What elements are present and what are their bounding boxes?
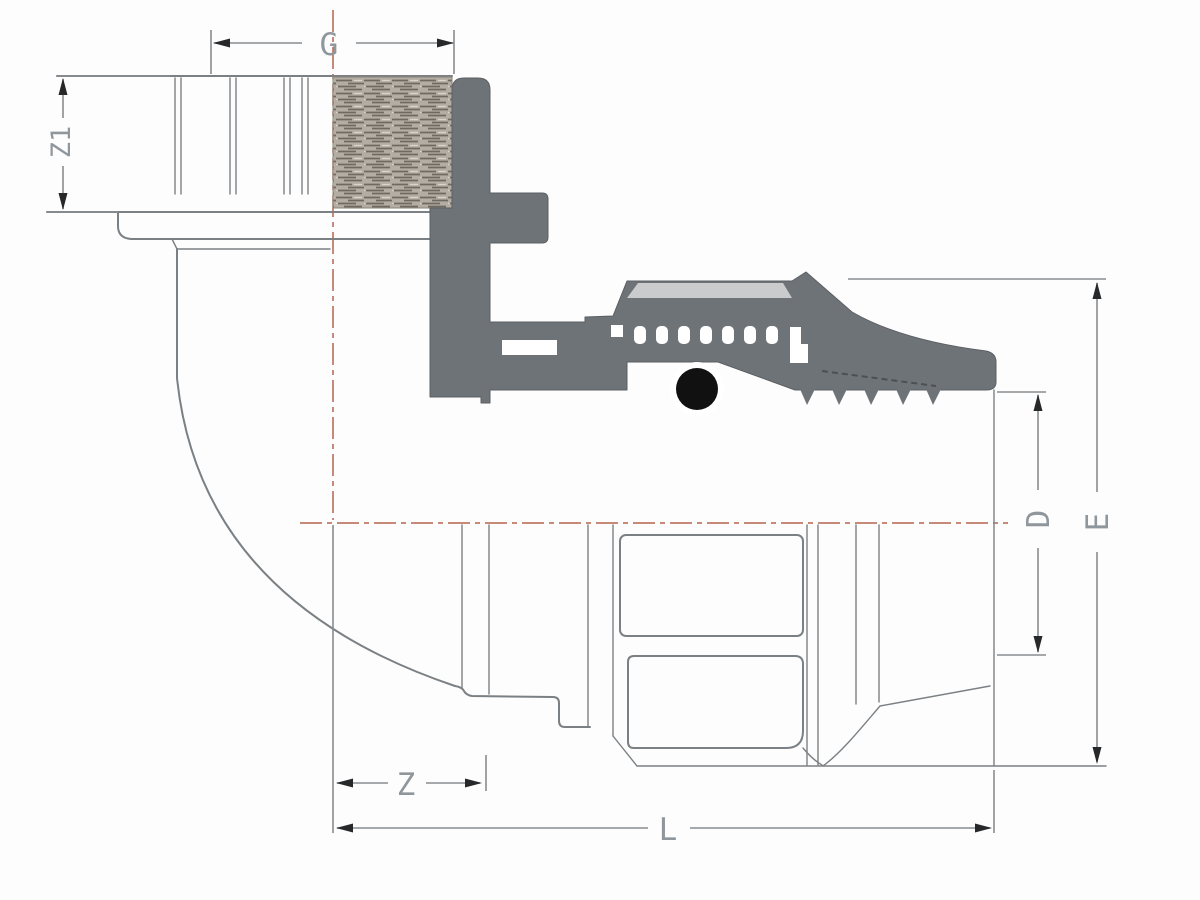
flange-left-edge	[118, 212, 452, 239]
dim-l-arrow-right	[975, 824, 992, 833]
dim-e-arrow-top	[1093, 282, 1102, 299]
dim-label-z1: Z1	[46, 126, 77, 159]
nut-top-band	[627, 283, 792, 298]
nut-window-upper	[620, 535, 803, 636]
nut-corner-link	[803, 748, 822, 765]
dim-label-e: E	[1080, 513, 1116, 532]
dim-z1-arrow-top	[59, 78, 68, 95]
dim-z-arrow-left	[336, 779, 353, 788]
body-half-section	[430, 78, 996, 416]
nut-rib-lines-right	[807, 525, 879, 765]
thread-hatch	[333, 77, 452, 208]
elbow-fitting-drawing: G Z1 D E Z L	[0, 0, 1200, 900]
dim-z1-arrow-bottom	[59, 193, 68, 210]
dim-d-arrow-bottom	[1034, 636, 1043, 653]
dim-label-l: L	[659, 812, 678, 848]
dim-z-arrow-right	[465, 779, 482, 788]
dimension-l: L	[336, 770, 994, 848]
body-recess-notch	[502, 340, 557, 355]
port-thread-lines	[175, 78, 308, 194]
o-ring	[676, 368, 718, 410]
dim-l-arrow-left	[336, 824, 353, 833]
dim-label-z: Z	[397, 767, 416, 803]
lower-external-details	[462, 525, 879, 765]
body-rib-lines-left	[462, 525, 613, 736]
dim-g-arrow-left	[213, 39, 230, 48]
elbow-curve	[177, 378, 455, 686]
dim-d-arrow-top	[1034, 394, 1043, 411]
dim-label-g: G	[320, 27, 339, 63]
dimension-z: Z	[333, 525, 486, 833]
insert-sawteeth	[800, 389, 941, 405]
dim-label-d: D	[1021, 510, 1057, 529]
nut-window-lower	[628, 656, 803, 748]
body-bottom-step	[455, 686, 590, 727]
nut-tail-taper	[823, 686, 990, 766]
nut-bottom-chamfer	[613, 736, 637, 766]
flange-outline	[47, 212, 452, 249]
drawing-canvas: G Z1 D E Z L	[0, 0, 1200, 900]
flange-sub-line	[172, 239, 330, 249]
dimension-z1: Z1	[46, 76, 170, 212]
dim-e-arrow-bottom	[1093, 747, 1102, 764]
dim-g-arrow-right	[437, 39, 454, 48]
